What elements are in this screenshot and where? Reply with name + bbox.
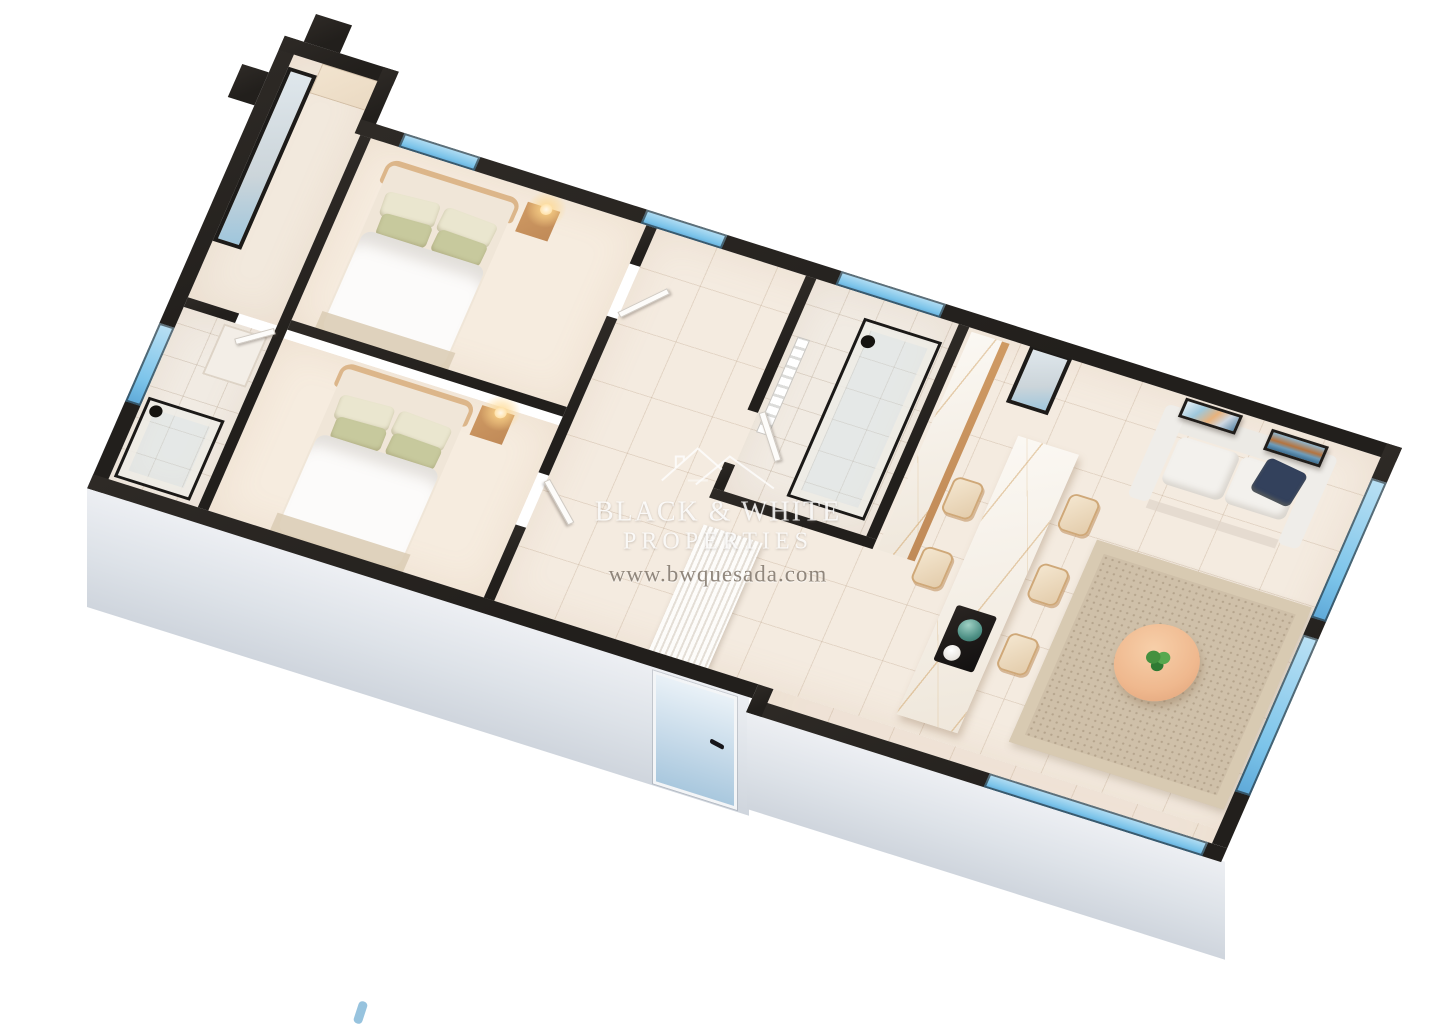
- stray-blue-mark: [353, 1000, 369, 1024]
- floorplan-scene: BLACK & WHITE PROPERTIES www.bwquesada.c…: [0, 0, 1440, 1024]
